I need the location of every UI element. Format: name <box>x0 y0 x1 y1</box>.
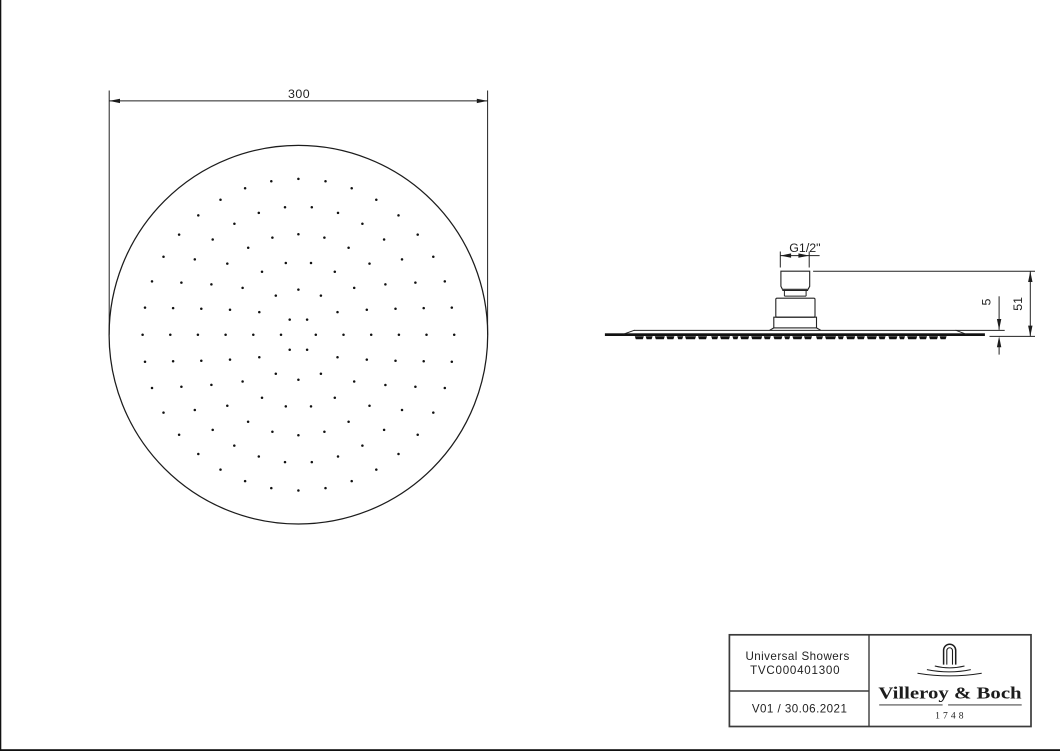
svg-text:Universal Showers: Universal Showers <box>745 650 849 663</box>
svg-text:51: 51 <box>1011 297 1025 311</box>
svg-text:5: 5 <box>979 298 993 305</box>
svg-text:300: 300 <box>288 87 310 101</box>
svg-text:TVC000401300: TVC000401300 <box>750 664 840 677</box>
svg-text:G1/2": G1/2" <box>789 241 820 255</box>
svg-text:1748: 1748 <box>935 711 967 722</box>
svg-text:V01 / 30.06.2021: V01 / 30.06.2021 <box>752 703 848 716</box>
svg-text:Villeroy & Boch: Villeroy & Boch <box>878 683 1022 702</box>
